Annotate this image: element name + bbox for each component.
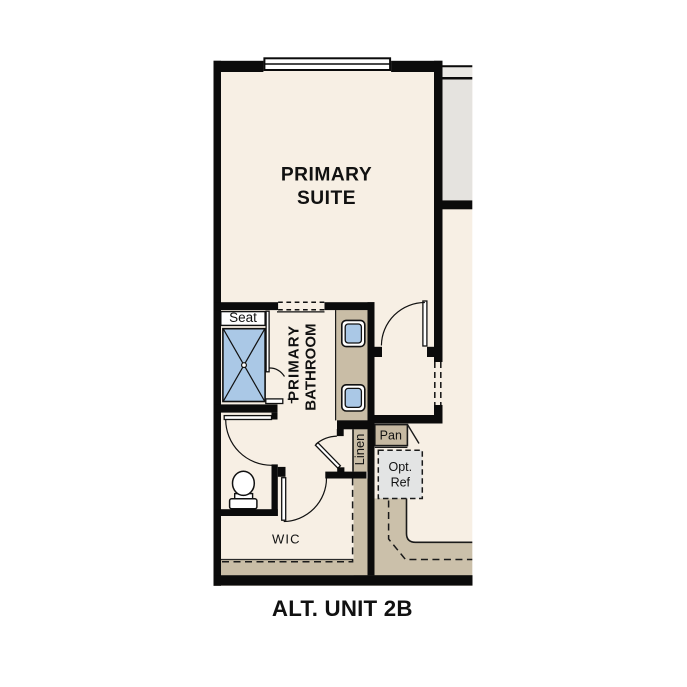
svg-text:BATHROOM: BATHROOM — [302, 323, 319, 410]
svg-text:PRIMARY: PRIMARY — [285, 325, 302, 401]
svg-text:Seat: Seat — [229, 310, 257, 325]
svg-text:PRIMARY: PRIMARY — [281, 165, 372, 186]
svg-text:Ref: Ref — [391, 475, 411, 489]
svg-text:Pan: Pan — [380, 429, 402, 443]
svg-text:SUITE: SUITE — [297, 188, 356, 209]
svg-text:ALT. UNIT 2B: ALT. UNIT 2B — [272, 596, 413, 621]
svg-text:WIC: WIC — [272, 531, 301, 546]
svg-text:Linen: Linen — [352, 434, 367, 466]
svg-text:Opt.: Opt. — [388, 460, 412, 474]
